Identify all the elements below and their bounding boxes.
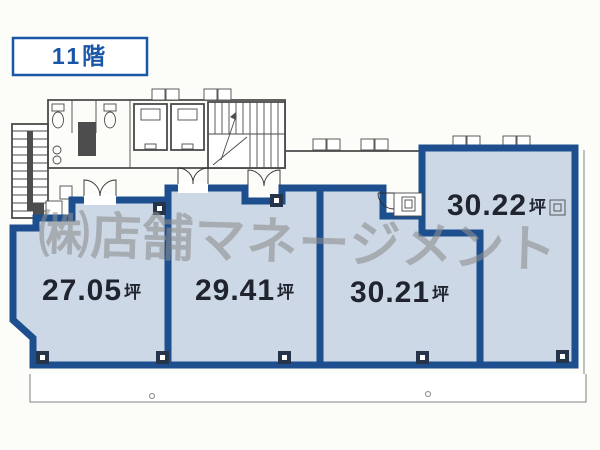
- door-swing-icon: [100, 180, 116, 196]
- door-swing-icon: [178, 168, 193, 184]
- door-swing-icon: [193, 168, 208, 184]
- door-swing-icon: [248, 170, 264, 186]
- sink-icon: [53, 156, 61, 164]
- stairwell: [208, 102, 285, 168]
- column-marker: [278, 351, 291, 364]
- floor-plan-canvas: ㈱店舗マネージメント 27.05坪 29.41坪 30.21坪 30.22坪 1…: [0, 0, 600, 450]
- plumbing-shaft: [78, 122, 96, 156]
- sink-icon: [53, 146, 61, 154]
- balcony: [30, 374, 586, 402]
- stair-handrail: [27, 131, 33, 211]
- column-marker: [556, 350, 569, 363]
- door-swing-icon: [264, 170, 280, 186]
- elevator-icon: [134, 104, 167, 150]
- toilet-icon: [104, 104, 116, 128]
- floor-plan-page: ㈱店舗マネージメント 27.05坪 29.41坪 30.21坪 30.22坪 1…: [0, 0, 600, 450]
- column-marker: [156, 351, 169, 364]
- elevator-icon: [171, 104, 204, 150]
- column-marker: [36, 351, 49, 364]
- column-marker: [416, 351, 429, 364]
- column-marker: [270, 194, 283, 207]
- restroom-area: [52, 100, 130, 168]
- door-swing-icon: [84, 180, 100, 196]
- floor-badge: 11階: [13, 38, 147, 75]
- floor-badge-label: 11階: [52, 43, 108, 69]
- toilet-icon: [52, 104, 64, 128]
